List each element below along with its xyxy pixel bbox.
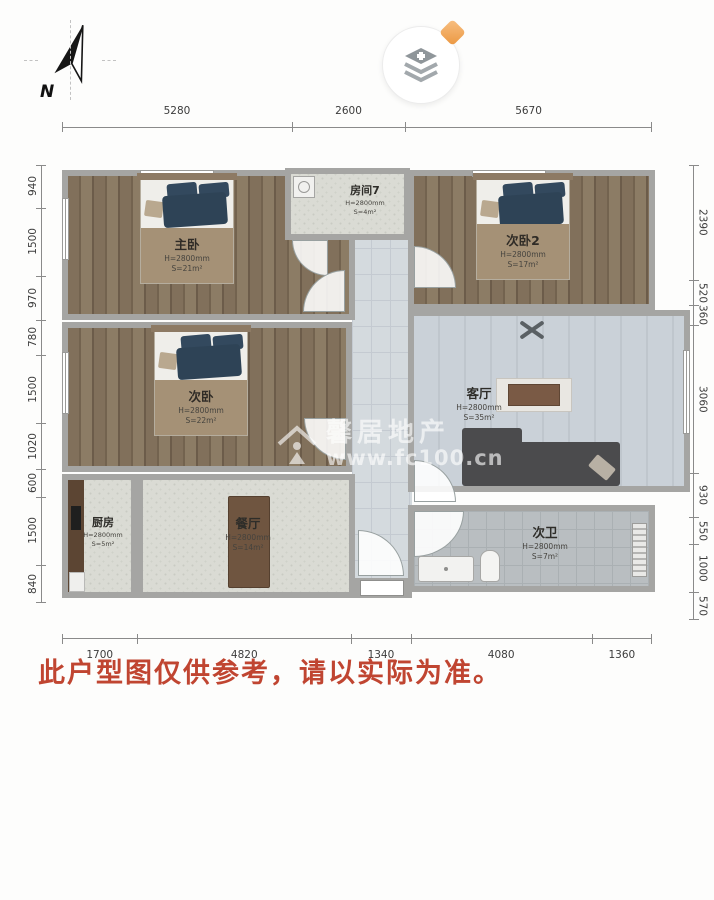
room-name: 厨房 — [92, 516, 114, 530]
room-height: H=2800mm — [500, 250, 546, 259]
dim-label: 5670 — [515, 106, 542, 117]
room-height: H=2800mm — [456, 403, 502, 412]
bed: 次卧2 H=2800mm S=17m² — [476, 178, 570, 280]
dimension-chain-right: 2390 520 360 3060 930 550 1000 570 — [693, 165, 711, 617]
cushion — [144, 200, 164, 218]
dim-segment: 780 — [24, 320, 42, 355]
dim-label: 930 — [697, 485, 708, 505]
layers-plus-icon — [400, 44, 442, 86]
dim-segment: 550 — [693, 517, 711, 543]
dim-segment: 1020 — [24, 423, 42, 469]
watermark-site: www.fc100.cn — [326, 447, 504, 469]
dim-segment: 570 — [693, 592, 711, 620]
bed: 次卧 H=2800mm S=22m² — [154, 330, 248, 436]
dim-segment: 840 — [24, 565, 42, 603]
dim-segment: 2390 — [693, 165, 711, 280]
disclaimer-text: 此户型图仅供参考，请以实际为准。 — [38, 651, 502, 690]
shower — [414, 511, 464, 557]
dim-label: 1500 — [28, 376, 39, 403]
tv — [508, 384, 560, 406]
blanket — [498, 192, 564, 228]
room-name: 次卧2 — [506, 233, 540, 249]
room-secondary-bathroom: 次卫 H=2800mm S=7m² — [408, 505, 655, 592]
dim-label: 1360 — [608, 650, 635, 661]
room-area: S=21m² — [172, 264, 203, 273]
compass-label: N — [40, 82, 54, 102]
dim-segment: 1360 — [592, 638, 652, 660]
room-height: H=2800mm — [345, 199, 385, 207]
cushion — [158, 352, 178, 370]
room-height: H=2800mm — [522, 542, 568, 551]
sink — [418, 556, 474, 582]
dim-segment: 970 — [24, 276, 42, 320]
room-area: S=7m² — [532, 552, 558, 561]
dim-segment: 1500 — [24, 355, 42, 423]
dim-label: 600 — [28, 473, 39, 493]
room-area: S=22m² — [186, 416, 217, 425]
room-height: H=2800mm — [164, 254, 210, 263]
blanket — [162, 192, 228, 228]
room-label: 次卫 H=2800mm S=7m² — [500, 525, 590, 561]
room-name: 主卧 — [174, 237, 199, 253]
room-name: 次卫 — [532, 525, 557, 541]
dim-label: 940 — [28, 176, 39, 196]
house-logo-icon — [276, 422, 318, 468]
room-name: 餐厅 — [235, 516, 260, 532]
ceiling-fan-icon — [518, 316, 546, 344]
window — [62, 198, 69, 260]
towel-radiator — [632, 523, 647, 577]
room-label: 次卧2 H=2800mm S=17m² — [477, 224, 569, 279]
dim-segment: 600 — [24, 469, 42, 496]
window — [683, 350, 690, 434]
entry-door — [360, 580, 404, 596]
dim-segment: 5280 — [62, 106, 292, 128]
room-label: 房间7 H=2800mm S=4m² — [329, 184, 401, 216]
dim-segment: 940 — [24, 165, 42, 208]
room-secondary-bedroom-2: 次卧2 H=2800mm S=17m² — [408, 170, 655, 310]
bed: 主卧 H=2800mm S=21m² — [140, 178, 234, 284]
room-label: 主卧 H=2800mm S=21m² — [141, 228, 233, 283]
dim-label: 570 — [697, 596, 708, 616]
room-area: S=5m² — [92, 540, 115, 548]
room-area: S=14m² — [233, 543, 264, 552]
gem-badge-icon — [439, 19, 466, 46]
dim-label: 1020 — [28, 433, 39, 460]
dim-label: 2390 — [697, 209, 708, 236]
dim-label: 1500 — [28, 228, 39, 255]
dim-segment: 1500 — [24, 208, 42, 276]
map-layers-button[interactable] — [382, 26, 460, 104]
dim-label: 360 — [697, 305, 708, 325]
room-label: 客厅 H=2800mm S=35m² — [444, 386, 514, 422]
room-label: 次卧 H=2800mm S=22m² — [155, 380, 247, 435]
room-height: H=2800mm — [83, 531, 123, 539]
room-label: 厨房 H=2800mm S=5m² — [76, 516, 130, 548]
watermark: 馨居地产 www.fc100.cn — [276, 420, 504, 469]
compass-guide-line — [70, 20, 71, 100]
room-height: H=2800mm — [178, 406, 224, 415]
room-area: S=4m² — [354, 208, 377, 216]
room-dining-room: 餐厅 H=2800mm S=14m² — [137, 474, 355, 598]
dim-label: 780 — [28, 327, 39, 347]
watermark-text: 馨居地产 www.fc100.cn — [326, 420, 504, 469]
window — [62, 352, 69, 414]
kitchen-appliance — [69, 572, 85, 592]
compass: N — [38, 20, 118, 104]
room-label: 餐厅 H=2800mm S=14m² — [188, 516, 308, 552]
dim-segment: 360 — [693, 305, 711, 325]
room-kitchen: 厨房 H=2800mm S=5m² — [62, 474, 137, 598]
cushion — [480, 200, 500, 218]
dim-segment: 3060 — [693, 325, 711, 472]
dimension-chain-left: 940 1500 970 780 1500 1020 600 1500 840 — [24, 165, 42, 603]
dim-segment: 520 — [693, 280, 711, 305]
dim-segment: 1000 — [693, 544, 711, 592]
dim-label: 970 — [28, 288, 39, 308]
compass-guide-line — [24, 60, 38, 61]
floorplan-canvas: N 5280 2600 5670 1700 4820 1340 4080 136… — [0, 0, 714, 900]
watermark-brand: 馨居地产 — [326, 420, 504, 447]
dim-label: 550 — [697, 521, 708, 541]
dim-label: 1000 — [697, 555, 708, 582]
dim-segment: 930 — [693, 473, 711, 518]
dim-segment: 2600 — [292, 106, 405, 128]
dim-label: 840 — [28, 574, 39, 594]
room-name: 房间7 — [350, 184, 380, 198]
toilet — [480, 550, 500, 582]
dim-segment: 5670 — [405, 106, 652, 128]
washing-machine-icon — [293, 176, 315, 198]
dim-label: 3060 — [697, 386, 708, 413]
dim-label: 520 — [697, 283, 708, 303]
dimension-chain-top: 5280 2600 5670 — [62, 106, 652, 128]
room-7: 房间7 H=2800mm S=4m² — [285, 168, 410, 240]
room-height: H=2800mm — [225, 533, 271, 542]
compass-guide-line — [102, 60, 116, 61]
blanket — [176, 344, 242, 380]
dim-segment: 1500 — [24, 497, 42, 565]
room-area: S=17m² — [508, 260, 539, 269]
dim-label: 1500 — [28, 517, 39, 544]
dim-label: 5280 — [164, 106, 191, 117]
room-name: 客厅 — [466, 386, 491, 402]
dim-label: 2600 — [335, 106, 362, 117]
room-name: 次卧 — [188, 389, 213, 405]
